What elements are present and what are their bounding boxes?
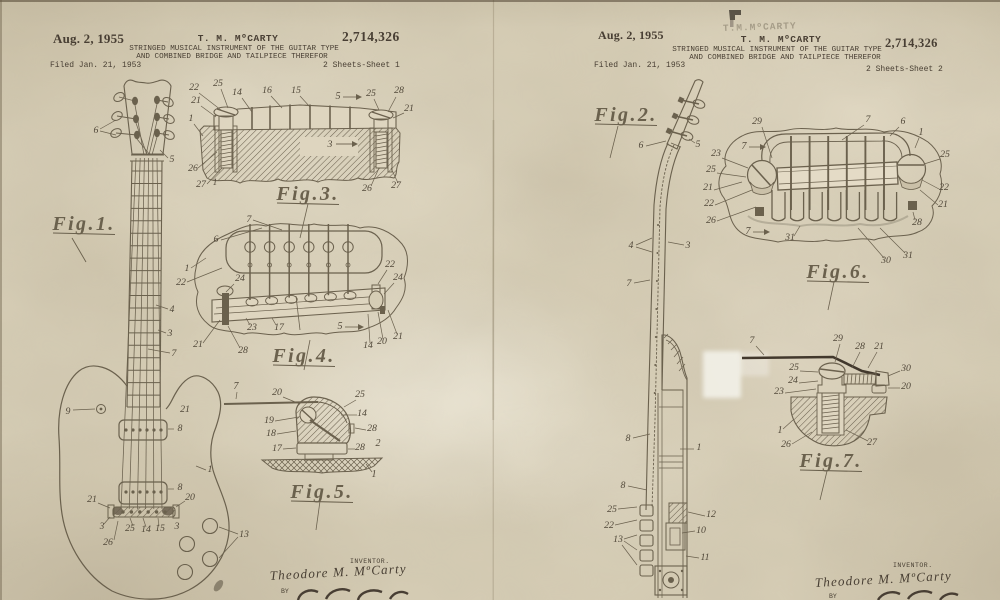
svg-text:24: 24	[788, 375, 798, 386]
svg-text:21: 21	[703, 182, 713, 193]
svg-text:Fig.3.: Fig.3.	[275, 183, 339, 205]
svg-text:T.M.MºCARTY: T.M.MºCARTY	[723, 20, 797, 34]
svg-text:6: 6	[901, 116, 906, 127]
svg-text:26: 26	[706, 215, 716, 226]
svg-text:6: 6	[94, 125, 99, 136]
svg-text:21: 21	[393, 331, 403, 342]
svg-text:BY: BY	[829, 593, 837, 600]
svg-text:Aug. 2, 1955: Aug. 2, 1955	[53, 31, 124, 46]
svg-text:5: 5	[170, 154, 175, 165]
svg-text:7: 7	[627, 278, 633, 289]
svg-text:22: 22	[385, 259, 395, 270]
svg-text:Fig.1.: Fig.1.	[51, 213, 115, 235]
svg-text:27: 27	[391, 180, 402, 191]
svg-text:25: 25	[355, 389, 365, 400]
svg-text:30: 30	[880, 255, 891, 266]
svg-text:5: 5	[338, 321, 343, 332]
svg-text:5: 5	[336, 91, 341, 102]
svg-text:14: 14	[232, 87, 242, 98]
svg-text:7: 7	[247, 214, 253, 225]
svg-text:STRINGED MUSICAL INSTRUMENT OF: STRINGED MUSICAL INSTRUMENT OF THE GUITA…	[129, 45, 339, 53]
svg-text:25: 25	[789, 362, 799, 373]
svg-text:28: 28	[394, 85, 404, 96]
svg-text:1: 1	[189, 113, 194, 124]
svg-text:7: 7	[866, 114, 872, 125]
svg-text:STRINGED MUSICAL INSTRUMENT OF: STRINGED MUSICAL INSTRUMENT OF THE GUITA…	[672, 46, 882, 54]
svg-text:4: 4	[629, 240, 634, 251]
svg-text:3: 3	[167, 328, 173, 339]
svg-text:Theodore M. MºCarty: Theodore M. MºCarty	[814, 568, 952, 590]
svg-text:BY: BY	[281, 588, 289, 595]
svg-text:27: 27	[867, 437, 878, 448]
svg-text:21: 21	[180, 404, 190, 415]
svg-text:27: 27	[196, 179, 207, 190]
svg-text:5: 5	[696, 139, 701, 150]
svg-text:28: 28	[855, 341, 865, 352]
svg-text:2 Sheets-Sheet 2: 2 Sheets-Sheet 2	[866, 65, 943, 74]
svg-text:Fig.7.: Fig.7.	[798, 450, 862, 472]
svg-text:7: 7	[750, 335, 756, 346]
svg-text:21: 21	[193, 339, 203, 350]
svg-text:T. M. MºCARTY: T. M. MºCARTY	[198, 33, 279, 44]
svg-text:9: 9	[66, 406, 71, 417]
svg-text:22: 22	[704, 198, 714, 209]
svg-text:21: 21	[87, 494, 97, 505]
svg-text:17: 17	[272, 443, 283, 454]
svg-text:7: 7	[746, 226, 752, 237]
svg-text:Fig.2.: Fig.2.	[593, 104, 657, 126]
svg-text:11: 11	[700, 552, 709, 563]
svg-text:AND COMBINED BRIDGE AND TAILPI: AND COMBINED BRIDGE AND TAILPIECE THEREF…	[136, 53, 328, 61]
svg-text:Filed Jan. 21, 1953: Filed Jan. 21, 1953	[50, 61, 141, 70]
svg-text:17: 17	[274, 322, 285, 333]
svg-text:12: 12	[706, 509, 716, 520]
svg-text:14: 14	[357, 408, 367, 419]
svg-text:28: 28	[912, 217, 922, 228]
svg-text:23: 23	[774, 386, 784, 397]
svg-text:15: 15	[291, 85, 301, 96]
svg-text:1: 1	[372, 469, 377, 480]
svg-text:29: 29	[833, 333, 843, 344]
svg-text:1: 1	[208, 464, 213, 475]
svg-text:23: 23	[711, 148, 721, 159]
svg-text:28: 28	[367, 423, 377, 434]
svg-text:1: 1	[213, 177, 218, 187]
svg-text:29: 29	[752, 116, 762, 127]
svg-text:22: 22	[939, 182, 949, 193]
svg-text:3: 3	[174, 521, 180, 532]
svg-text:T. M. MºCARTY: T. M. MºCARTY	[741, 34, 822, 45]
svg-text:7: 7	[742, 141, 748, 152]
svg-text:26: 26	[188, 163, 198, 174]
svg-text:20: 20	[272, 387, 282, 398]
svg-text:Fig.4.: Fig.4.	[271, 345, 335, 367]
svg-text:18: 18	[266, 428, 276, 439]
svg-text:31: 31	[784, 232, 795, 243]
svg-text:2 Sheets-Sheet 1: 2 Sheets-Sheet 1	[323, 61, 400, 70]
svg-text:1: 1	[185, 263, 190, 274]
svg-text:20: 20	[901, 381, 911, 392]
svg-text:26: 26	[103, 537, 113, 548]
svg-text:26: 26	[781, 439, 791, 450]
svg-text:25: 25	[607, 504, 617, 515]
svg-text:15: 15	[155, 523, 165, 534]
svg-text:28: 28	[355, 442, 365, 453]
svg-text:3: 3	[99, 521, 105, 531]
svg-text:25: 25	[940, 149, 950, 160]
svg-text:7: 7	[172, 348, 178, 359]
svg-text:21: 21	[874, 341, 884, 352]
svg-text:Theodore M. MºCarty: Theodore M. MºCarty	[269, 561, 407, 583]
svg-text:8: 8	[178, 423, 183, 434]
svg-text:2,714,326: 2,714,326	[342, 29, 400, 44]
svg-text:14: 14	[363, 340, 373, 351]
svg-text:2: 2	[376, 438, 381, 449]
svg-text:25: 25	[125, 523, 135, 534]
svg-text:23: 23	[247, 322, 257, 333]
svg-text:6: 6	[639, 140, 644, 151]
svg-text:20: 20	[377, 336, 387, 347]
svg-text:13: 13	[239, 529, 249, 540]
svg-text:10: 10	[696, 525, 706, 536]
svg-text:1: 1	[778, 425, 783, 436]
svg-text:21: 21	[191, 95, 201, 106]
svg-text:Aug. 2, 1955: Aug. 2, 1955	[598, 28, 664, 42]
svg-text:25: 25	[213, 78, 223, 89]
svg-text:19: 19	[264, 415, 274, 426]
svg-text:2,714,326: 2,714,326	[885, 36, 938, 50]
svg-text:20: 20	[185, 492, 195, 503]
svg-text:INVENTOR.: INVENTOR.	[893, 562, 933, 569]
svg-text:22: 22	[604, 520, 614, 531]
svg-text:8: 8	[178, 482, 183, 493]
svg-text:30: 30	[900, 363, 911, 374]
svg-text:21: 21	[938, 199, 948, 210]
svg-text:21: 21	[404, 103, 414, 114]
svg-text:7: 7	[234, 381, 240, 392]
svg-text:14: 14	[141, 524, 151, 535]
svg-text:4: 4	[170, 304, 175, 315]
svg-text:16: 16	[262, 85, 272, 96]
svg-text:8: 8	[626, 433, 631, 444]
svg-text:8: 8	[621, 480, 626, 491]
svg-text:25: 25	[366, 88, 376, 99]
svg-text:Fig.6.: Fig.6.	[805, 261, 869, 283]
svg-text:1: 1	[697, 442, 702, 453]
svg-text:24: 24	[235, 273, 245, 284]
svg-text:Fig.5.: Fig.5.	[289, 481, 353, 503]
svg-text:1: 1	[919, 127, 924, 138]
svg-text:25: 25	[706, 164, 716, 175]
svg-text:22: 22	[189, 82, 199, 93]
svg-text:6: 6	[214, 234, 219, 245]
svg-text:24: 24	[393, 272, 403, 283]
svg-text:26: 26	[362, 183, 372, 194]
svg-text:Filed Jan. 21, 1953: Filed Jan. 21, 1953	[594, 61, 685, 70]
svg-text:3: 3	[685, 240, 691, 251]
svg-text:13: 13	[613, 534, 623, 545]
svg-text:22: 22	[176, 277, 186, 288]
svg-text:AND COMBINED BRIDGE AND TAILPI: AND COMBINED BRIDGE AND TAILPIECE THEREF…	[689, 54, 881, 62]
svg-text:3: 3	[327, 139, 333, 150]
